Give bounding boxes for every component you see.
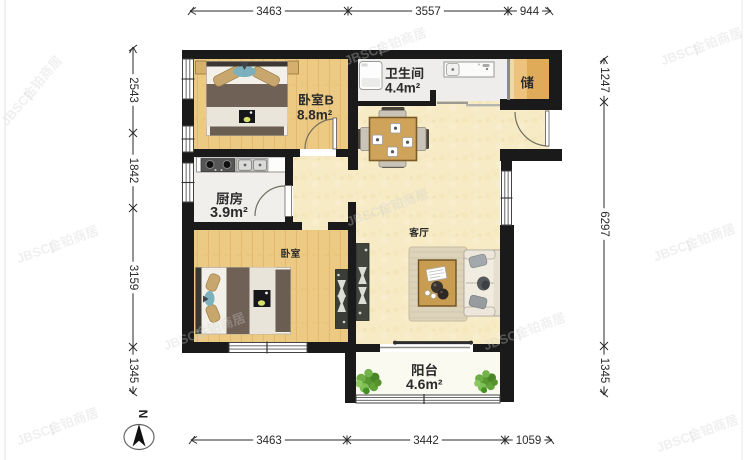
svg-text:N: N bbox=[136, 410, 150, 419]
svg-text:1842: 1842 bbox=[127, 158, 139, 184]
svg-text:1345: 1345 bbox=[598, 358, 610, 384]
svg-text:944: 944 bbox=[520, 6, 540, 18]
svg-text:6297: 6297 bbox=[598, 211, 610, 237]
svg-text:4.6m²: 4.6m² bbox=[406, 376, 443, 392]
svg-text:3159: 3159 bbox=[127, 265, 139, 291]
svg-text:3.9m²: 3.9m² bbox=[210, 205, 248, 221]
svg-text:3463: 3463 bbox=[256, 435, 282, 447]
svg-text:3442: 3442 bbox=[413, 435, 439, 447]
svg-text:8.8m²: 8.8m² bbox=[297, 108, 333, 123]
svg-text:1059: 1059 bbox=[516, 435, 542, 447]
svg-text:2543: 2543 bbox=[127, 77, 139, 103]
svg-text:1247: 1247 bbox=[598, 67, 610, 93]
svg-text:3463: 3463 bbox=[256, 6, 282, 18]
svg-text:B: B bbox=[325, 93, 334, 108]
svg-text:1345: 1345 bbox=[127, 358, 139, 384]
svg-text:4.4m²: 4.4m² bbox=[385, 81, 421, 96]
svg-text:3557: 3557 bbox=[415, 6, 441, 18]
